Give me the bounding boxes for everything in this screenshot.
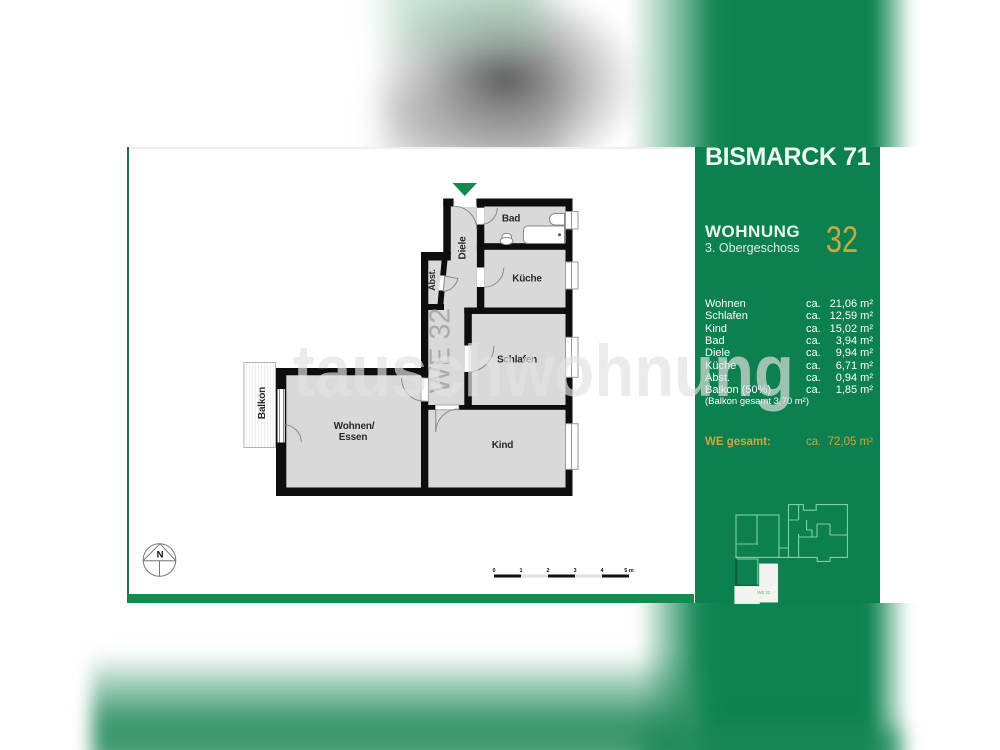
svg-text:Bad: Bad	[502, 214, 520, 225]
svg-text:Wohnen/: Wohnen/	[334, 421, 375, 432]
svg-text:N: N	[157, 550, 164, 561]
svg-text:Balkon: Balkon	[257, 387, 268, 419]
svg-text:Abst.: Abst.	[427, 269, 437, 291]
svg-text:1: 1	[519, 568, 522, 574]
svg-text:Kind: Kind	[492, 440, 514, 451]
svg-text:Essen: Essen	[339, 432, 368, 443]
svg-text:Diele: Diele	[458, 236, 469, 260]
svg-text:4: 4	[600, 568, 604, 574]
svg-text:0: 0	[492, 568, 495, 574]
svg-text:5 m: 5 m	[624, 568, 634, 574]
svg-text:Küche: Küche	[512, 274, 542, 285]
svg-text:2: 2	[546, 568, 549, 574]
svg-text:3: 3	[573, 568, 576, 574]
